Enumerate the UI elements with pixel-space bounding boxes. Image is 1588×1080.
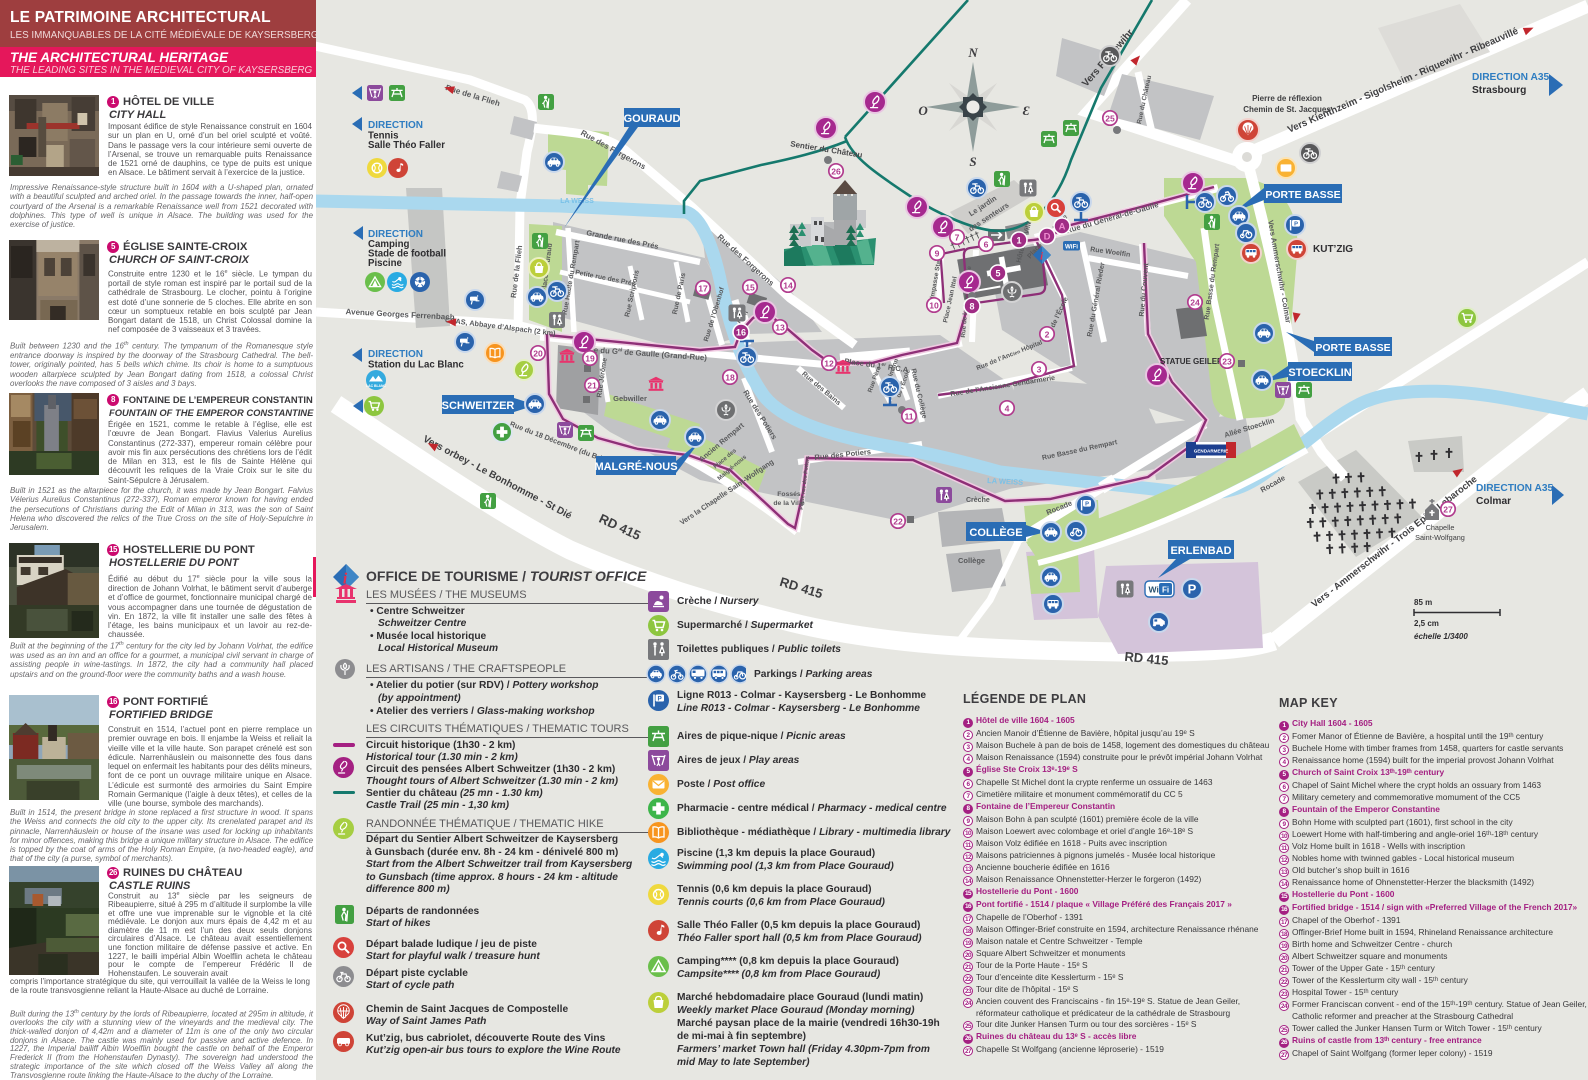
svg-text:6: 6 bbox=[984, 239, 989, 249]
svg-text:17: 17 bbox=[698, 283, 708, 293]
svg-text:7: 7 bbox=[955, 232, 960, 242]
svg-text:échelle 1/3400: échelle 1/3400 bbox=[1414, 632, 1468, 641]
svg-text:25: 25 bbox=[1105, 113, 1115, 123]
svg-text:5: 5 bbox=[995, 269, 1000, 279]
svg-text:16: 16 bbox=[736, 328, 746, 338]
svg-text:Pierre de réflexion: Pierre de réflexion bbox=[1252, 94, 1322, 103]
svg-text:14: 14 bbox=[783, 280, 793, 290]
svg-text:2,5 cm: 2,5 cm bbox=[1414, 619, 1439, 628]
svg-text:Wi: Wi bbox=[1149, 585, 1159, 595]
svg-text:PORTE BASSE: PORTE BASSE bbox=[1265, 189, 1340, 201]
svg-text:3: 3 bbox=[1037, 364, 1042, 374]
svg-text:LA WEISS: LA WEISS bbox=[987, 476, 1023, 487]
svg-text:Crèche: Crèche bbox=[966, 497, 990, 504]
svg-text:COLLÈGE: COLLÈGE bbox=[969, 526, 1022, 539]
svg-text:DIRECTION A35: DIRECTION A35 bbox=[1476, 483, 1554, 494]
svg-text:9: 9 bbox=[935, 248, 940, 258]
svg-text:Fi: Fi bbox=[1162, 586, 1169, 595]
svg-text:WiFi: WiFi bbox=[1065, 244, 1078, 251]
svg-text:O: O bbox=[918, 103, 928, 118]
svg-text:PORTE BASSE: PORTE BASSE bbox=[1315, 342, 1390, 354]
svg-text:Chemin de St. Jacques: Chemin de St. Jacques bbox=[1243, 105, 1331, 114]
svg-text:10: 10 bbox=[929, 300, 939, 310]
svg-text:26: 26 bbox=[831, 166, 841, 176]
svg-text:15: 15 bbox=[745, 282, 755, 292]
svg-text:Fossés: Fossés bbox=[777, 491, 801, 498]
svg-text:22: 22 bbox=[893, 516, 903, 526]
svg-text:N: N bbox=[967, 45, 978, 60]
svg-text:85 m: 85 m bbox=[1414, 598, 1432, 607]
svg-text:Strasbourg: Strasbourg bbox=[1472, 85, 1526, 96]
svg-text:GENDARMERIE: GENDARMERIE bbox=[1194, 449, 1228, 454]
svg-text:Collège: Collège bbox=[958, 556, 985, 565]
svg-text:11: 11 bbox=[904, 411, 913, 421]
svg-text:Colmar: Colmar bbox=[1476, 496, 1511, 507]
svg-text:1: 1 bbox=[1016, 236, 1021, 246]
svg-text:ERLENBAD: ERLENBAD bbox=[1170, 545, 1231, 557]
svg-text:A: A bbox=[1059, 222, 1066, 233]
svg-text:13: 13 bbox=[775, 322, 785, 332]
svg-text:8: 8 bbox=[969, 302, 974, 312]
svg-text:STATUE GEILER: STATUE GEILER bbox=[1160, 357, 1223, 366]
svg-text:2: 2 bbox=[1045, 329, 1050, 339]
svg-text:P: P bbox=[1188, 582, 1197, 597]
svg-text:27: 27 bbox=[1443, 504, 1453, 514]
svg-text:S: S bbox=[969, 154, 976, 169]
svg-text:de la Ville: de la Ville bbox=[773, 500, 804, 507]
svg-text:KUT’ZIG: KUT’ZIG bbox=[1313, 244, 1353, 255]
svg-text:Chapelle: Chapelle bbox=[1426, 523, 1455, 532]
svg-text:DIRECTION A35: DIRECTION A35 bbox=[1472, 72, 1550, 83]
svg-text:24: 24 bbox=[1190, 297, 1200, 307]
svg-text:12: 12 bbox=[824, 358, 834, 368]
svg-text:P: P bbox=[657, 695, 662, 702]
svg-text:Ɛ: Ɛ bbox=[1023, 103, 1030, 118]
svg-text:23: 23 bbox=[1222, 356, 1232, 366]
svg-text:4: 4 bbox=[1005, 403, 1010, 413]
svg-text:D: D bbox=[1044, 232, 1051, 243]
svg-text:18: 18 bbox=[725, 372, 735, 382]
svg-text:STOECKLIN: STOECKLIN bbox=[1288, 367, 1351, 379]
svg-text:Saint-Wolfgang: Saint-Wolfgang bbox=[1415, 533, 1465, 542]
